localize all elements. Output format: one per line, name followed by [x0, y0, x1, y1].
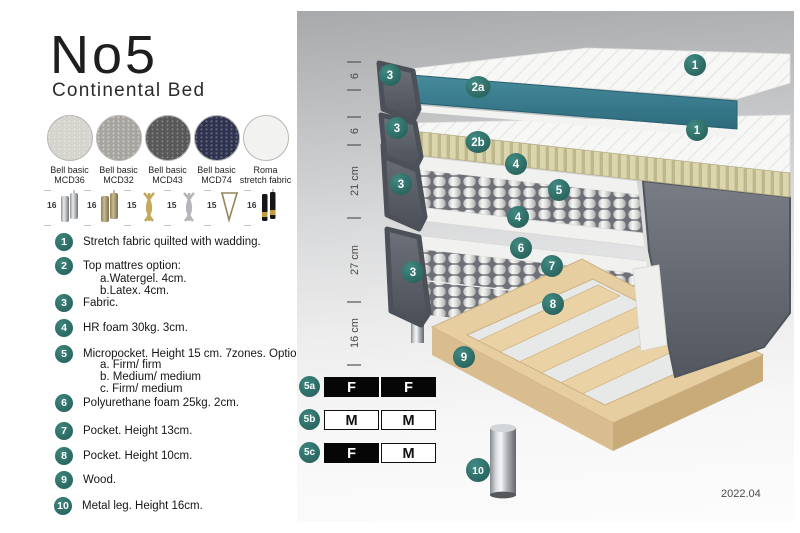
ruler-label: 21 cm — [349, 166, 361, 196]
feature-text: Pocket. Height 13cm. — [83, 425, 192, 437]
fabric-swatch: Romastretch fabric — [241, 115, 290, 185]
svg-text:3: 3 — [398, 179, 404, 191]
badge-8: 8 — [542, 293, 564, 315]
svg-text:3: 3 — [394, 123, 400, 135]
feature-item-7: 7Pocket. Height 13cm. — [55, 422, 192, 440]
feature-text: HR foam 30kg. 3cm. — [83, 322, 188, 334]
leg-icon-black-gold — [257, 188, 283, 226]
fabric-swatch: Bell basicMCD74 — [192, 115, 241, 185]
fabric-code: MCD43 — [152, 175, 183, 185]
leg-option-chrome-cylinder: 16 — [44, 188, 84, 228]
leg-option-wood-cylinder: 16 — [84, 188, 124, 228]
svg-text:8: 8 — [550, 299, 557, 311]
feature-number-badge: 3 — [55, 294, 73, 312]
feature-text: Fabric. — [83, 297, 118, 309]
fabric-swatch-circle — [243, 115, 289, 161]
svg-text:1: 1 — [692, 60, 699, 72]
svg-text:2b: 2b — [471, 137, 484, 149]
badge-5: 5 — [548, 179, 570, 201]
fabric-name: Bell basic — [99, 165, 138, 175]
feature-item-4: 4HR foam 30kg. 3cm. — [55, 319, 188, 337]
svg-text:4: 4 — [515, 212, 522, 224]
feature-subitem: a. Firm/ firm — [100, 359, 161, 371]
firmness-badge: 5c — [299, 442, 320, 463]
firmness-cell: M — [324, 410, 379, 430]
page: No5 Continental Bed Bell basicMCD36 Bell… — [0, 0, 800, 533]
leg-option-hairpin: 15 — [204, 188, 244, 228]
feature-text: Stretch fabric quilted with wadding. — [83, 236, 261, 248]
feature-item-5: 5Micropocket. Height 15 cm. 7zones. Opti… — [55, 345, 306, 363]
fabric-swatch-circle — [47, 115, 93, 161]
diagram-panel: 6 6 21 cm 27 cm 16 cm 1 3 2a 1 3 2b 4 5 … — [297, 11, 794, 522]
badge-10: 10 — [466, 458, 490, 482]
badge-6: 6 — [510, 237, 532, 259]
firmness-row-5c: 5c F M — [299, 442, 436, 463]
leg-icon-wood-cylinder — [97, 188, 123, 226]
badge-7: 7 — [541, 255, 563, 277]
leg-icon-hairpin — [217, 188, 243, 226]
feature-item-10: 10Metal leg. Height 16cm. — [54, 497, 203, 515]
fabric-swatches: Bell basicMCD36 Bell basicMCD32 Bell bas… — [45, 115, 290, 185]
ruler-label: 6 — [349, 73, 361, 79]
svg-text:7: 7 — [549, 261, 555, 273]
feature-number-badge: 10 — [54, 497, 72, 515]
fabric-name: Bell basic — [197, 165, 236, 175]
feature-subitem: a.Watergel. 4cm. — [100, 273, 187, 285]
dimension-ruler: 6 6 21 cm 27 cm 16 cm — [347, 62, 361, 365]
feature-text: Wood. — [83, 474, 116, 486]
fabric-swatch-circle — [194, 115, 240, 161]
feature-item-8: 8Pocket. Height 10cm. — [55, 447, 192, 465]
svg-text:1: 1 — [694, 125, 701, 137]
badge-3-c: 3 — [390, 173, 412, 195]
svg-text:6: 6 — [518, 243, 524, 255]
badge-3-d: 3 — [402, 261, 424, 283]
feature-number-badge: 6 — [55, 394, 73, 412]
feature-item-9: 9Wood. — [55, 471, 116, 489]
product-subtitle: Continental Bed — [52, 80, 205, 102]
feature-number-badge: 7 — [55, 422, 73, 440]
feature-number-badge: 4 — [55, 319, 73, 337]
leg-option-twisted-gold: 15 — [124, 188, 164, 228]
leg-height: 16 — [47, 200, 56, 210]
badge-4-b: 4 — [507, 206, 529, 228]
firmness-cell: M — [381, 443, 436, 463]
firmness-cell: F — [324, 377, 379, 397]
badge-1-top: 1 — [684, 54, 706, 76]
svg-text:2a: 2a — [472, 82, 485, 94]
metal-leg-front — [490, 424, 516, 498]
svg-text:4: 4 — [513, 159, 520, 171]
firmness-badge: 5a — [299, 376, 320, 397]
feature-item-1: 1Stretch fabric quilted with wadding. — [55, 233, 261, 251]
leg-height: 15 — [207, 200, 216, 210]
firmness-cell: F — [381, 377, 436, 397]
svg-text:3: 3 — [410, 267, 416, 279]
svg-text:5: 5 — [556, 185, 563, 197]
leg-options: 16 16 15 15 15 — [44, 188, 284, 228]
fabric-name: Roma — [253, 165, 277, 175]
feature-item-6: 6Polyurethane foam 25kg. 2cm. — [55, 394, 239, 412]
fabric-swatch-circle — [145, 115, 191, 161]
svg-text:10: 10 — [472, 465, 484, 477]
leg-icon-twisted-silver — [177, 188, 203, 226]
badge-2a: 2a — [466, 76, 491, 98]
fabric-swatch: Bell basicMCD36 — [45, 115, 94, 185]
ruler-label: 16 cm — [349, 318, 361, 348]
leg-height: 15 — [167, 200, 176, 210]
leg-height: 15 — [127, 200, 136, 210]
feature-number-badge: 8 — [55, 447, 73, 465]
feature-number-badge: 2 — [55, 257, 73, 275]
product-title: No5 — [50, 24, 158, 86]
fabric-name: Bell basic — [50, 165, 89, 175]
ruler-label: 6 — [349, 128, 361, 134]
leg-height: 16 — [247, 200, 256, 210]
firmness-cell: F — [324, 443, 379, 463]
feature-text: Top mattres option: — [83, 260, 181, 272]
svg-text:3: 3 — [387, 70, 393, 82]
badge-3-b: 3 — [386, 117, 408, 139]
feature-number-badge: 5 — [55, 345, 73, 363]
fabric-swatch: Bell basicMCD32 — [94, 115, 143, 185]
firmness-cell: M — [381, 410, 436, 430]
feature-number-badge: 9 — [55, 471, 73, 489]
feature-item-3: 3Fabric. — [55, 294, 118, 312]
fabric-name: Bell basic — [148, 165, 187, 175]
version-label: 2022.04 — [721, 488, 761, 500]
fabric-swatch: Bell basicMCD43 — [143, 115, 192, 185]
ruler-label: 27 cm — [349, 245, 361, 275]
firmness-badge: 5b — [299, 409, 320, 430]
firmness-row-5a: 5a F F — [299, 376, 436, 397]
feature-subitem: b. Medium/ medium — [100, 371, 201, 383]
badge-1-b: 1 — [686, 119, 708, 141]
fabric-code: MCD32 — [103, 175, 134, 185]
badge-2b: 2b — [466, 131, 491, 153]
svg-text:9: 9 — [461, 352, 467, 364]
fabric-swatch-circle — [96, 115, 142, 161]
feature-number-badge: 1 — [55, 233, 73, 251]
leg-height: 16 — [87, 200, 96, 210]
fabric-code: MCD74 — [201, 175, 232, 185]
fabric-code: MCD36 — [54, 175, 85, 185]
feature-text: Polyurethane foam 25kg. 2cm. — [83, 397, 239, 409]
firmness-row-5b: 5b M M — [299, 409, 436, 430]
leg-icon-twisted-gold — [137, 188, 163, 226]
badge-4-a: 4 — [505, 153, 527, 175]
fabric-code: stretch fabric — [240, 175, 292, 185]
leg-option-black-gold: 16 — [244, 188, 284, 228]
feature-text: Pocket. Height 10cm. — [83, 450, 192, 462]
badge-3-a: 3 — [379, 64, 401, 86]
leg-icon-chrome-cylinder — [57, 188, 83, 226]
feature-text: Metal leg. Height 16cm. — [82, 500, 203, 512]
badge-9: 9 — [453, 346, 475, 368]
leg-option-twisted-silver: 15 — [164, 188, 204, 228]
